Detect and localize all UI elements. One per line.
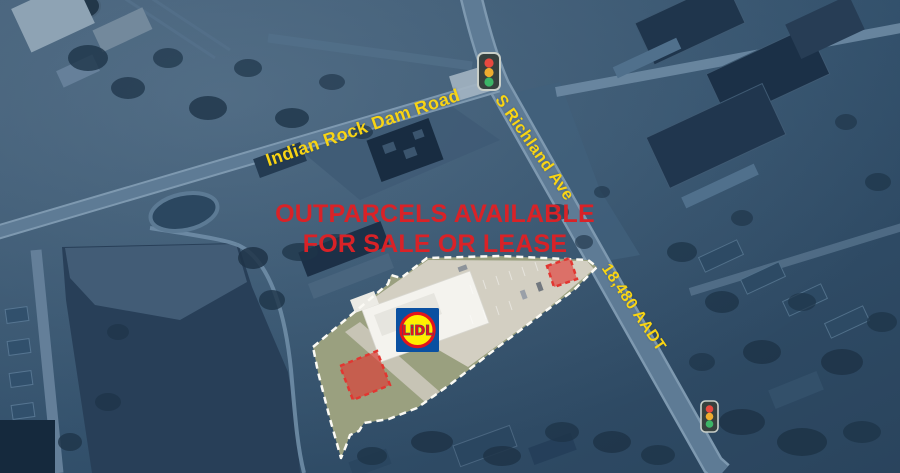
traffic-light-icon-north <box>478 53 500 90</box>
headline-line-1: OUTPARCELS AVAILABLE <box>275 199 595 229</box>
headline-line-2: FOR SALE OR LEASE <box>275 229 595 259</box>
headline: OUTPARCELS AVAILABLE FOR SALE OR LEASE <box>275 199 595 259</box>
lidl-wordmark: LiDL <box>402 324 434 339</box>
aerial-map: LiDL Indian Rock Dam Road S Richland Ave… <box>0 0 900 473</box>
lidl-logo: LiDL <box>396 308 439 352</box>
traffic-light-icon-south <box>701 401 718 432</box>
